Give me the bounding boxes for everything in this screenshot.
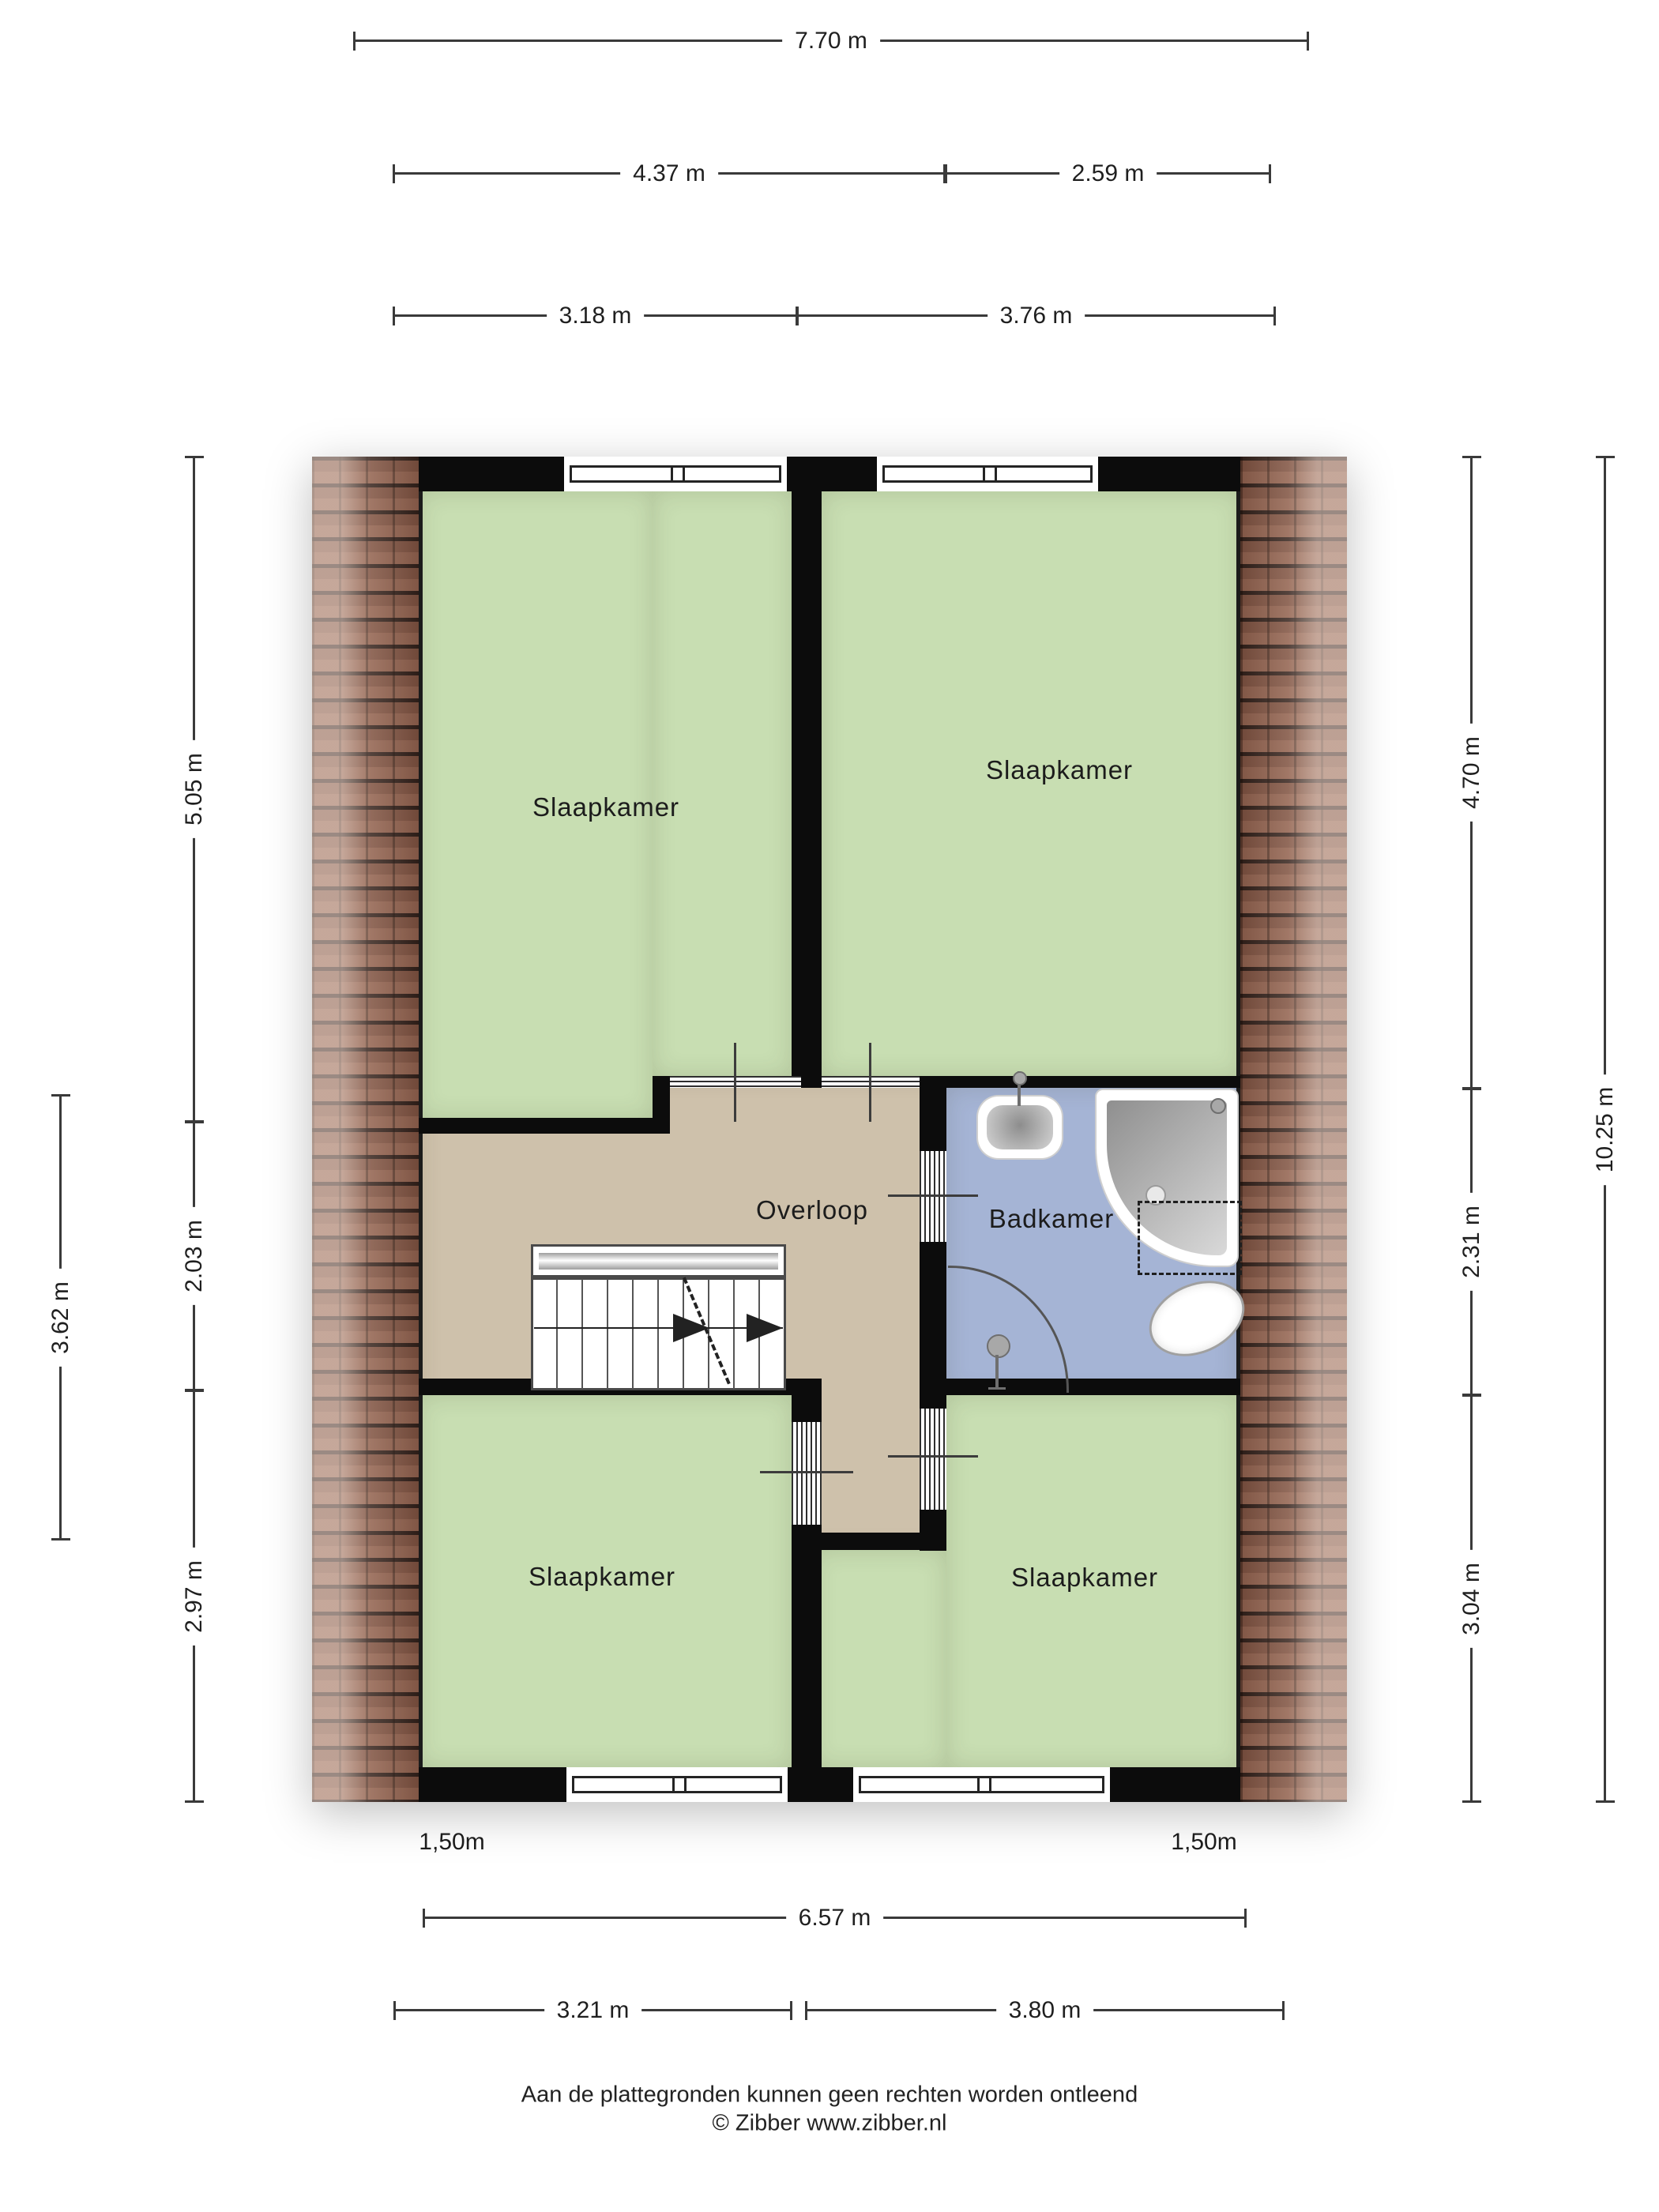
roof-tiles-left <box>312 457 419 1802</box>
dimension-top-left: 4.37 m <box>393 172 945 175</box>
stair-tread-line <box>607 1279 608 1389</box>
dimension-left-top: 5.05 m <box>193 457 195 1122</box>
stair-tread-line <box>657 1279 659 1389</box>
knee-height-label-right: 1,50m <box>1171 1829 1236 1856</box>
dimension-bottom-total: 6.57 m <box>423 1917 1246 1919</box>
wall-exterior-bottom <box>419 1767 1240 1802</box>
window-mullion <box>671 465 685 483</box>
window-bottom-left <box>566 1767 788 1802</box>
room-label-bedroom-top-right: Slaapkamer <box>986 755 1133 785</box>
stair-tread-line <box>733 1279 735 1389</box>
dimension-top-total: 7.70 m <box>354 39 1308 42</box>
stair-tread-line <box>632 1279 634 1389</box>
shower-area-dashed <box>1138 1201 1242 1275</box>
door-bedroom-bottom-right <box>920 1409 946 1510</box>
door-leaf-line <box>888 1455 978 1458</box>
footer-credit: © Zibber www.zibber.nl <box>713 2111 947 2137</box>
dimension-left-mid: 2.03 m <box>193 1122 195 1390</box>
window-top-left <box>564 457 787 491</box>
dimension-top-right: 2.59 m <box>946 172 1270 175</box>
dimension-bottom-right: 3.80 m <box>806 2009 1284 2011</box>
door-leaf-line <box>869 1043 871 1122</box>
stair-direction-line <box>534 1327 783 1329</box>
roof-tiles-right <box>1240 457 1347 1802</box>
dimension-right-outer: 10.25 m <box>1604 457 1606 1802</box>
door-leaf-line <box>734 1043 736 1122</box>
dimension-right-bottom: 3.04 m <box>1470 1395 1473 1802</box>
room-label-bathroom: Badkamer <box>989 1204 1114 1234</box>
stair-tread-line <box>581 1279 583 1389</box>
sink-basin <box>987 1105 1053 1149</box>
window-bottom-right <box>853 1767 1110 1802</box>
door-leaf-line <box>760 1471 853 1473</box>
door-leaf-line <box>888 1194 978 1197</box>
stair-arrow-icon <box>747 1314 783 1342</box>
room-bedroom-bottom-right-ext <box>814 1550 946 1767</box>
wall-step-pier <box>653 1076 670 1134</box>
dimension-left-bottom: 2.97 m <box>193 1390 195 1802</box>
window-top-right <box>877 457 1098 491</box>
wall-bathroom-top <box>920 1076 1240 1088</box>
dimension-top-right-inner: 3.76 m <box>797 314 1275 317</box>
room-label-bedroom-top-left: Slaapkamer <box>532 792 679 822</box>
footer-disclaimer: Aan de plattegronden kunnen geen rechten… <box>521 2082 1138 2109</box>
wall-exterior-top <box>419 457 1240 491</box>
shower-mixer-base <box>988 1387 1006 1390</box>
knee-height-label-left: 1,50m <box>419 1829 484 1856</box>
room-bedroom-top-left-ext <box>653 491 792 1076</box>
room-label-bedroom-bottom-right: Slaapkamer <box>1011 1563 1158 1593</box>
floorplan-page: Slaapkamer Slaapkamer Overloop Badkamer … <box>0 0 1659 2212</box>
sink-faucet-knob <box>1013 1071 1027 1085</box>
staircase-handrail <box>539 1253 778 1270</box>
dimension-right-top: 4.70 m <box>1470 457 1473 1089</box>
stair-tread-line <box>556 1279 558 1389</box>
window-mullion <box>983 465 997 483</box>
shower-mixer <box>987 1334 1010 1358</box>
window-mullion <box>672 1776 687 1793</box>
room-label-landing: Overloop <box>756 1195 868 1225</box>
dimension-top-left-inner: 3.18 m <box>393 314 797 317</box>
dimension-bottom-left: 3.21 m <box>394 2009 792 2011</box>
bathtub-faucet <box>1210 1098 1226 1114</box>
dimension-left-outer: 3.62 m <box>59 1095 62 1540</box>
wall-corridor-bottom <box>822 1533 946 1550</box>
room-label-bedroom-bottom-left: Slaapkamer <box>529 1562 675 1592</box>
dimension-right-mid: 2.31 m <box>1470 1089 1473 1395</box>
shower-mixer-stem <box>995 1355 999 1388</box>
wall-bedroom-tl-bottom <box>419 1118 653 1134</box>
wall-between-top-bedrooms <box>792 491 822 1088</box>
window-mullion <box>977 1776 991 1793</box>
door-bedroom-bottom-left <box>792 1422 822 1525</box>
